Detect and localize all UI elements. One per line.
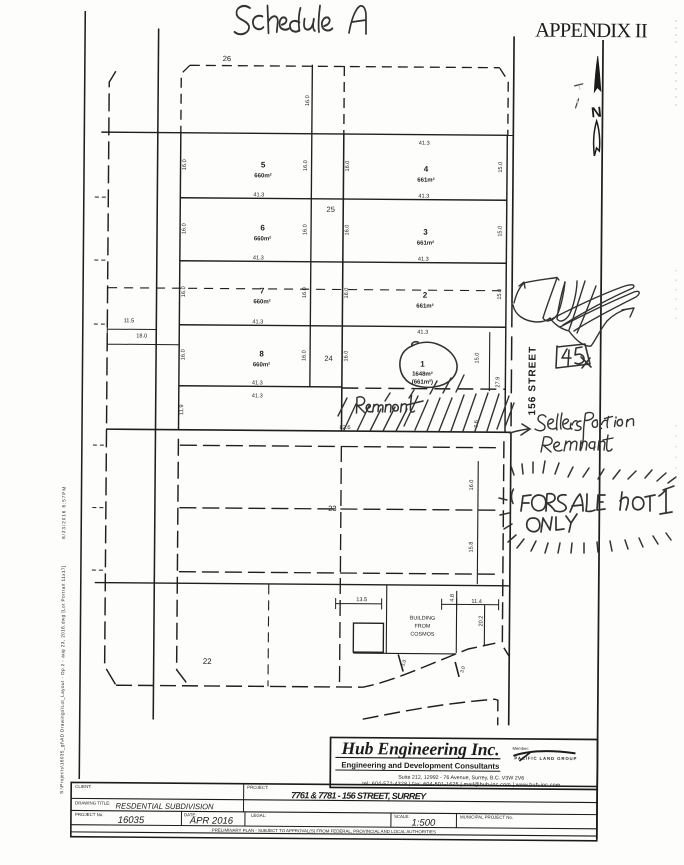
svg-text:18.0: 18.0: [136, 333, 147, 339]
svg-text:CLIENT:: CLIENT:: [75, 784, 91, 789]
svg-text:S:\Projects\16035_gl\AD Drawin: S:\Projects\16035_gl\AD Drawings\Lot_Lay…: [59, 566, 66, 794]
svg-text:15.0: 15.0: [475, 353, 481, 364]
svg-text:2: 2: [423, 291, 428, 300]
svg-text:660m²: 660m²: [254, 172, 271, 179]
svg-text:16.0: 16.0: [182, 223, 188, 234]
svg-text:16.0: 16.0: [302, 287, 308, 298]
svg-text:Hub Engineering Inc.: Hub Engineering Inc.: [340, 738, 499, 759]
svg-text:Engineering and Development Co: Engineering and Development Consultants: [341, 761, 500, 771]
svg-text:MUNICIPAL PROJECT No.: MUNICIPAL PROJECT No.: [460, 814, 513, 819]
svg-text:660m²: 660m²: [253, 298, 270, 305]
svg-text:APPENDIX II: APPENDIX II: [535, 20, 648, 43]
svg-text:7761 & 7781 - 156 STREET, SURR: 7761 & 7781 - 156 STREET, SURREY: [291, 790, 427, 801]
svg-text:41.3: 41.3: [252, 380, 263, 386]
svg-text:7: 7: [260, 286, 265, 295]
svg-text:1: 1: [420, 360, 425, 369]
svg-text:41.3: 41.3: [252, 393, 263, 399]
svg-text:16.0: 16.0: [303, 160, 309, 171]
svg-text:16035: 16035: [118, 815, 145, 826]
svg-text:20.2: 20.2: [478, 616, 484, 627]
svg-text:16.0: 16.0: [345, 225, 351, 236]
svg-text:16.0: 16.0: [344, 351, 350, 362]
svg-text:3.0: 3.0: [400, 659, 408, 667]
svg-text:41.3: 41.3: [418, 257, 429, 263]
svg-text:4.8: 4.8: [450, 594, 456, 602]
svg-text:26: 26: [223, 54, 231, 63]
svg-text:41.3: 41.3: [417, 330, 428, 336]
svg-text:1648m²: 1648m²: [412, 371, 433, 378]
svg-text:6: 6: [260, 223, 265, 232]
svg-text:15.0: 15.0: [498, 226, 504, 237]
svg-text:4: 4: [424, 165, 429, 174]
svg-text:25: 25: [327, 205, 335, 214]
svg-text:156 STREET: 156 STREET: [527, 346, 539, 416]
svg-text:16.0: 16.0: [303, 224, 309, 235]
svg-text:16.0: 16.0: [181, 349, 187, 360]
svg-text:RESDENTIAL SUBDIVISION: RESDENTIAL SUBDIVISION: [116, 802, 214, 812]
svg-text:11.4: 11.4: [471, 599, 482, 605]
svg-text:16.0: 16.0: [302, 350, 308, 361]
svg-text:660m²: 660m²: [253, 361, 270, 368]
svg-text:11.9: 11.9: [179, 404, 185, 415]
svg-text:16.0: 16.0: [344, 288, 350, 299]
svg-text:661m²: 661m²: [417, 240, 434, 247]
svg-text:SCALE:: SCALE:: [394, 814, 410, 819]
svg-text:FROM: FROM: [414, 624, 430, 630]
svg-text:PROJECT No.: PROJECT No.: [75, 812, 104, 817]
svg-text:13.5: 13.5: [356, 597, 367, 603]
svg-text:5: 5: [261, 160, 266, 169]
svg-text:3: 3: [423, 228, 428, 237]
svg-text:3.0: 3.0: [459, 665, 467, 673]
svg-text:16.0: 16.0: [305, 95, 311, 106]
svg-text:N: N: [590, 105, 602, 122]
svg-text:LEGAL:: LEGAL:: [251, 813, 266, 818]
svg-text:COSMOS: COSMOS: [410, 632, 434, 638]
svg-text:15.0: 15.0: [497, 289, 503, 300]
svg-text:41.3: 41.3: [253, 255, 264, 261]
svg-text:661m²: 661m²: [416, 303, 433, 310]
svg-text:41.3: 41.3: [419, 141, 430, 147]
svg-text:1:500: 1:500: [411, 818, 436, 829]
svg-text:11.5: 11.5: [124, 318, 135, 324]
svg-text:27.9: 27.9: [495, 377, 501, 388]
svg-text:41.3: 41.3: [418, 194, 429, 200]
svg-text:DRAWING TITLE:: DRAWING TITLE:: [75, 800, 110, 805]
svg-text:16.0: 16.0: [469, 480, 475, 491]
svg-text:661m²: 661m²: [417, 177, 434, 184]
svg-text:22: 22: [203, 657, 213, 666]
svg-text:660m²: 660m²: [254, 235, 271, 242]
svg-text:16.0: 16.0: [182, 159, 188, 170]
svg-text:8: 8: [259, 349, 264, 358]
svg-text:41.3: 41.3: [253, 192, 264, 198]
svg-text:PROJECT:: PROJECT:: [247, 785, 268, 790]
svg-text:Member:: Member:: [512, 746, 529, 751]
svg-text:BUILDING: BUILDING: [410, 616, 436, 622]
svg-text:15.8: 15.8: [469, 542, 475, 553]
svg-text:24: 24: [324, 354, 332, 363]
svg-text:16.0: 16.0: [181, 286, 187, 297]
svg-text:APR 2016: APR 2016: [189, 815, 234, 826]
svg-text:41.3: 41.3: [252, 319, 263, 325]
svg-text:15.0: 15.0: [498, 162, 504, 173]
svg-text:16.0: 16.0: [345, 161, 351, 172]
svg-text:PACIFIC LAND GROUP: PACIFIC LAND GROUP: [514, 756, 576, 761]
svg-text:23: 23: [328, 504, 336, 513]
svg-text:8/23/2016 8:57PM: 8/23/2016 8:57PM: [61, 487, 66, 539]
